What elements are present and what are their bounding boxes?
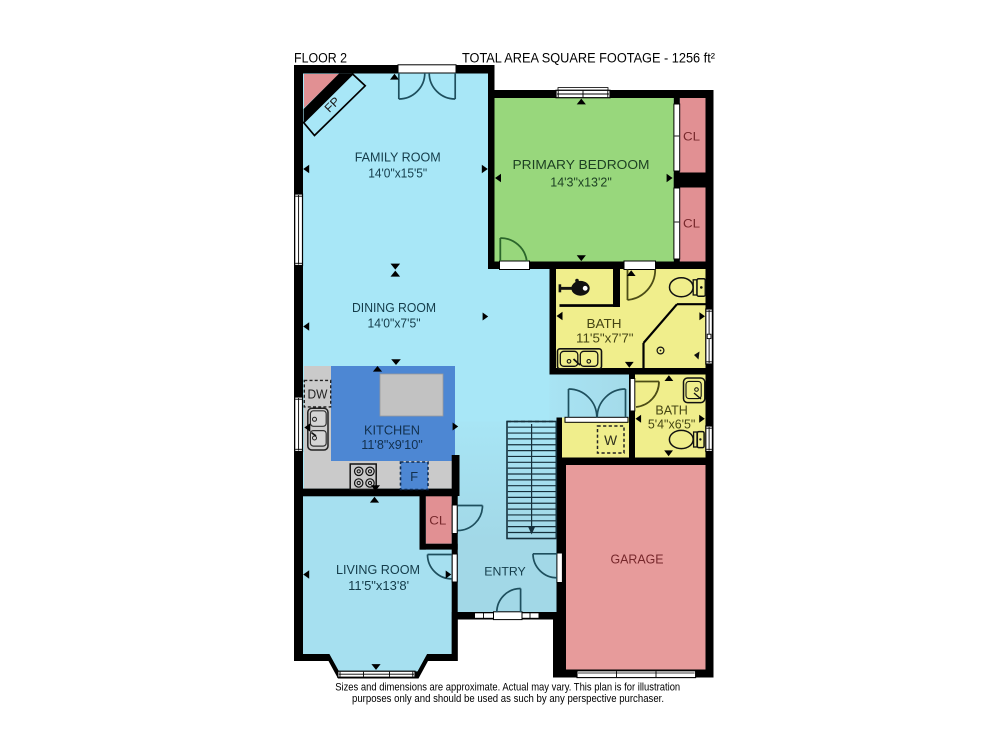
svg-text:CL: CL xyxy=(683,130,700,144)
svg-text:CL: CL xyxy=(683,217,700,231)
svg-text:W: W xyxy=(604,433,617,448)
svg-text:11'5"x7'7": 11'5"x7'7" xyxy=(576,331,634,346)
svg-text:11'8"x9'10": 11'8"x9'10" xyxy=(361,437,423,452)
svg-text:PRIMARY BEDROOM: PRIMARY BEDROOM xyxy=(513,157,650,172)
svg-text:DINING ROOM: DINING ROOM xyxy=(352,300,436,315)
svg-text:11'5"x13'8': 11'5"x13'8' xyxy=(348,578,409,593)
svg-text:DW: DW xyxy=(308,387,329,402)
svg-text:LIVING ROOM: LIVING ROOM xyxy=(336,562,420,577)
svg-text:purposes only and should be us: purposes only and should be used as such… xyxy=(352,693,664,705)
svg-text:5'4"x6'5": 5'4"x6'5" xyxy=(648,417,696,432)
svg-text:FAMILY ROOM: FAMILY ROOM xyxy=(355,150,441,165)
svg-text:CL: CL xyxy=(429,514,446,528)
svg-text:14'0"x15'5": 14'0"x15'5" xyxy=(368,166,427,181)
svg-text:14'0"x7'5": 14'0"x7'5" xyxy=(368,316,421,331)
svg-text:F: F xyxy=(410,469,418,484)
svg-text:TOTAL AREA SQUARE FOOTAGE - 12: TOTAL AREA SQUARE FOOTAGE - 1256 ft² xyxy=(462,51,715,66)
svg-text:14'3"x13'2": 14'3"x13'2" xyxy=(550,175,612,190)
svg-text:BATH: BATH xyxy=(655,403,688,418)
svg-text:BATH: BATH xyxy=(587,316,622,331)
svg-text:Sizes and dimensions are appro: Sizes and dimensions are approximate. Ac… xyxy=(335,682,680,694)
svg-text:KITCHEN: KITCHEN xyxy=(364,423,420,438)
svg-text:GARAGE: GARAGE xyxy=(611,552,664,567)
svg-text:ENTRY: ENTRY xyxy=(484,565,526,579)
svg-text:FLOOR 2: FLOOR 2 xyxy=(294,51,347,66)
